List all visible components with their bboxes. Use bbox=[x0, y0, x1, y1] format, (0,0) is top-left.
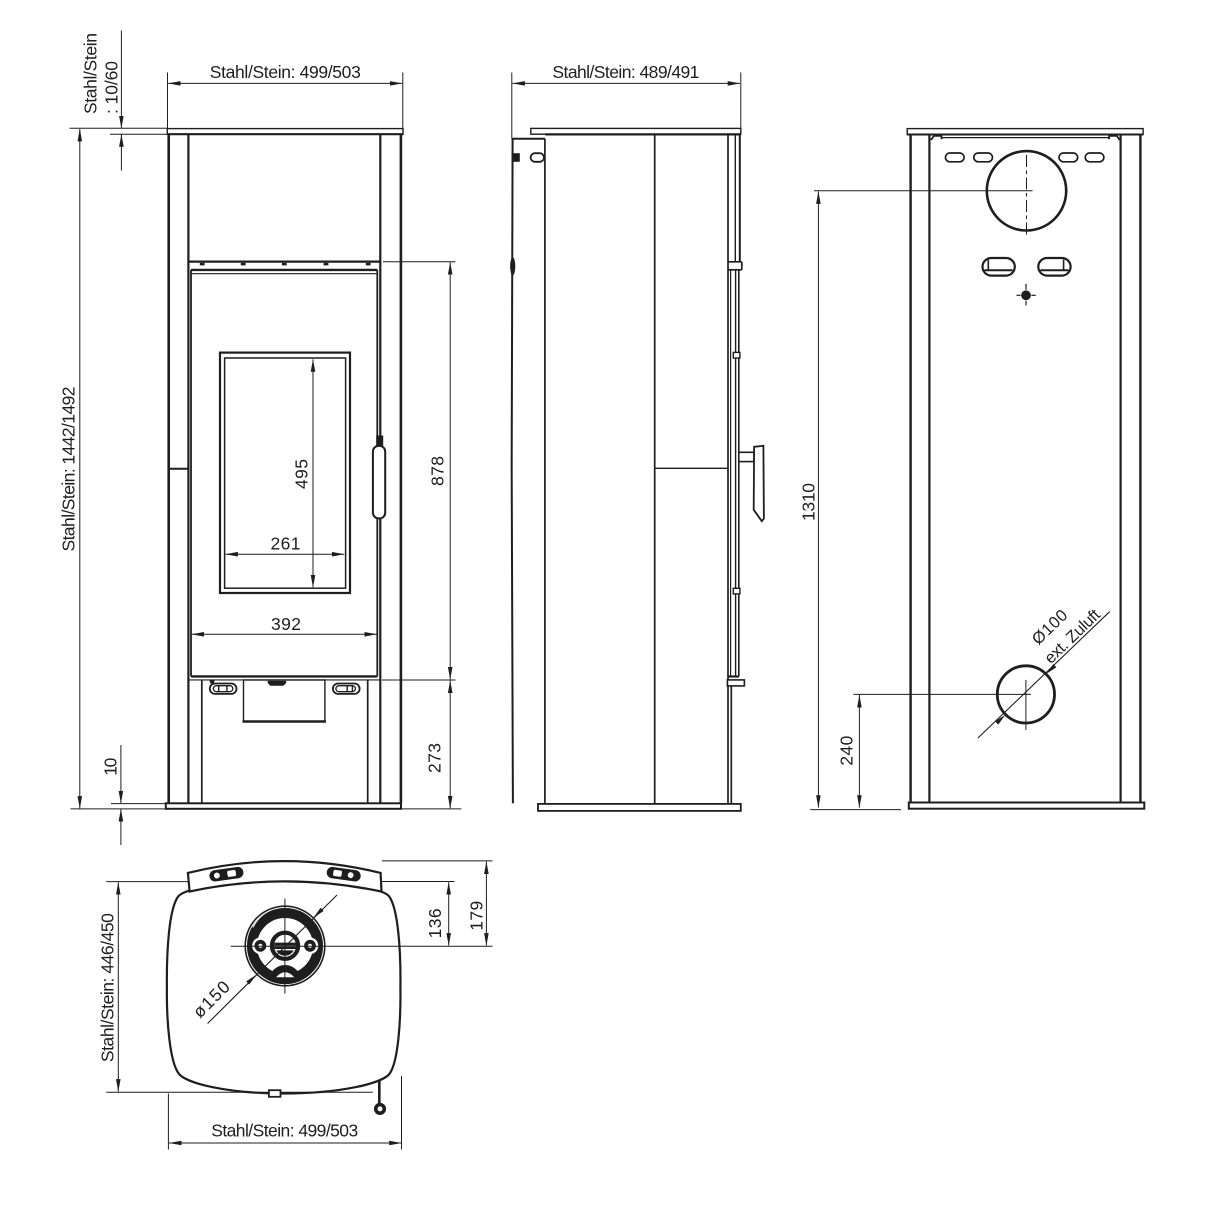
svg-text:261: 261 bbox=[271, 534, 301, 554]
svg-text:273: 273 bbox=[425, 743, 445, 773]
svg-text:878: 878 bbox=[428, 456, 448, 486]
svg-text:10: 10 bbox=[101, 757, 121, 775]
svg-text:392: 392 bbox=[271, 614, 301, 634]
svg-text:1310: 1310 bbox=[799, 483, 819, 521]
svg-text:Stahl/Stein: Stahl/Stein bbox=[81, 33, 101, 114]
svg-text:: 10/60: : 10/60 bbox=[102, 61, 122, 114]
svg-text:136: 136 bbox=[425, 908, 445, 938]
svg-text:495: 495 bbox=[292, 459, 312, 489]
svg-text:179: 179 bbox=[467, 901, 487, 931]
svg-text:Stahl/Stein: 446/450: Stahl/Stein: 446/450 bbox=[98, 913, 118, 1062]
svg-text:Stahl/Stein: 499/503: Stahl/Stein: 499/503 bbox=[211, 1121, 358, 1141]
svg-text:240: 240 bbox=[837, 735, 857, 765]
svg-text:Stahl/Stein: 1442/1492: Stahl/Stein: 1442/1492 bbox=[59, 387, 79, 552]
svg-text:Stahl/Stein: 499/503: Stahl/Stein: 499/503 bbox=[210, 62, 361, 82]
svg-text:Stahl/Stein: 489/491: Stahl/Stein: 489/491 bbox=[552, 62, 699, 82]
